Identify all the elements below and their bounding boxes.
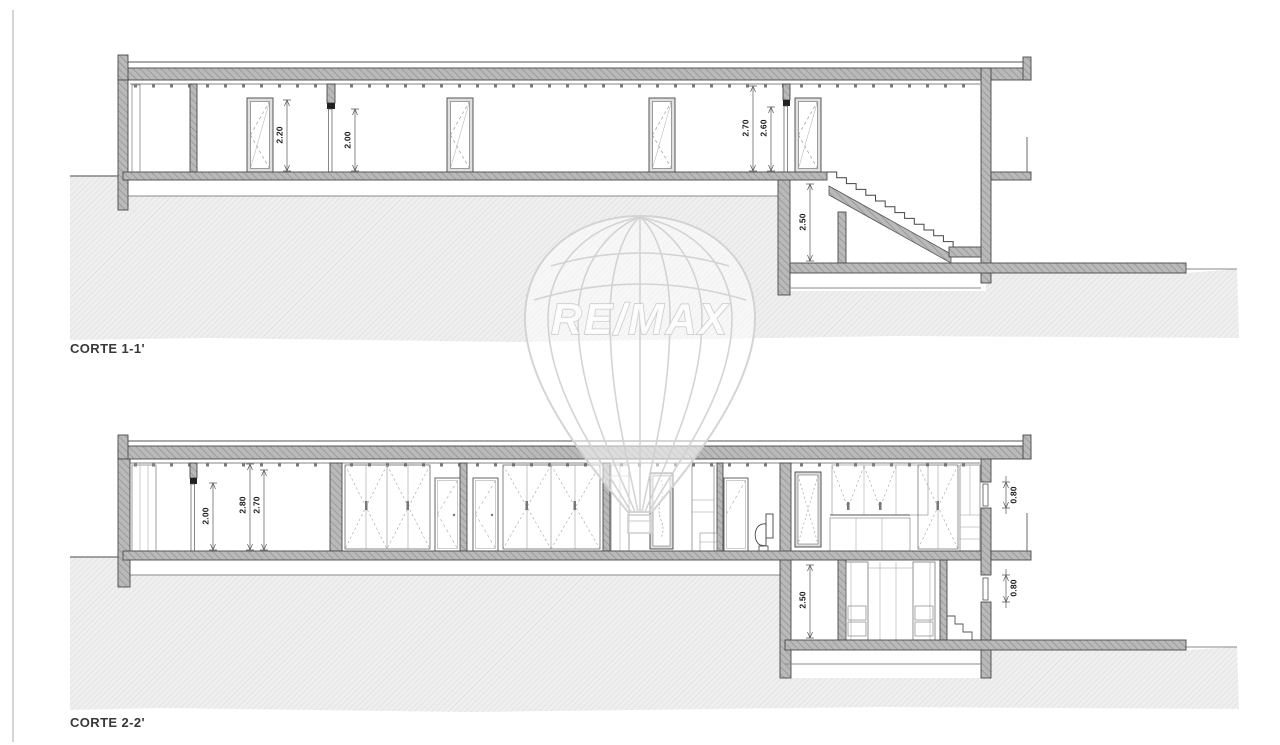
door-elevation xyxy=(435,478,460,551)
dimension-basement-height: 2.50 xyxy=(797,184,814,261)
ground-hatch xyxy=(70,557,1239,712)
door-head-stub xyxy=(783,84,790,100)
section-drawing-svg: 2.20 2.00 2.70 2.60 2.50 xyxy=(0,0,1280,745)
dim-label: 2.70 xyxy=(251,496,261,513)
dimension-basement-height: 2.50 xyxy=(797,565,814,638)
door-elevation xyxy=(724,478,748,551)
wall-left xyxy=(118,459,130,587)
basement-wall xyxy=(940,560,947,640)
door-head-tip xyxy=(190,478,197,484)
dim-label: 2.00 xyxy=(200,507,210,524)
dim-label: 2.00 xyxy=(342,131,352,148)
basement-wall-left xyxy=(778,172,790,295)
stair-landing xyxy=(949,247,981,257)
terrace-slab xyxy=(790,263,1186,273)
door-elevation xyxy=(649,98,675,172)
wardrobe-elevation xyxy=(345,465,430,549)
door-leaf-section xyxy=(784,106,788,172)
dimension-ceiling-height: 2.70 xyxy=(251,470,268,550)
dim-label: 2.20 xyxy=(274,126,284,143)
dimension-window-lower: 0.80 xyxy=(1002,569,1018,608)
bed-unit xyxy=(846,562,868,640)
door-head-tip xyxy=(783,100,790,106)
wall-right xyxy=(981,68,991,283)
corte-2-label: CORTE 2-2' xyxy=(70,715,145,730)
dim-label: 2.50 xyxy=(797,213,807,230)
understair-wall xyxy=(838,212,846,263)
roof-slab xyxy=(118,446,1031,459)
vanity-counter xyxy=(830,515,910,551)
tall-cabinet xyxy=(960,465,980,551)
dimension-window-upper: 0.80 xyxy=(1002,476,1018,514)
door-head-tip xyxy=(327,103,335,109)
door-elevation xyxy=(795,98,821,172)
window-frame-upper xyxy=(983,484,988,506)
parapet-right xyxy=(1023,57,1031,80)
basement-stairs xyxy=(947,616,980,640)
roof-slab xyxy=(118,68,1031,80)
blueprint-canvas: 2.20 2.00 2.70 2.60 2.50 xyxy=(0,0,1280,745)
parapet-right xyxy=(1023,435,1031,459)
porch-slab xyxy=(991,551,1031,560)
door-head-stub xyxy=(190,463,197,478)
dim-label: 2.50 xyxy=(797,591,807,608)
dimension-ceiling-height: 2.70 xyxy=(740,86,757,171)
floor-slab xyxy=(123,551,981,560)
door-elevation xyxy=(473,478,498,551)
watermark-brand-text: RE/MAX xyxy=(551,295,730,344)
basement-closet xyxy=(868,562,913,640)
dim-label: 0.80 xyxy=(1008,579,1018,596)
glazing-panel xyxy=(132,85,140,172)
wardrobe-elevation xyxy=(503,465,600,549)
partition-wall xyxy=(330,463,342,551)
corte-1-label: CORTE 1-1' xyxy=(70,341,145,356)
dim-label: 2.60 xyxy=(758,119,768,136)
dimension-opening-height: 2.00 xyxy=(200,483,217,550)
partition-wall xyxy=(190,84,197,172)
bed-unit xyxy=(913,562,935,640)
balloon-basket xyxy=(628,515,652,533)
door-leaf-section xyxy=(329,109,333,172)
glazing-panel xyxy=(132,465,156,551)
dim-label: 0.80 xyxy=(1008,486,1018,503)
door-elevation xyxy=(247,98,273,172)
shelf-partition xyxy=(692,465,717,551)
toilet xyxy=(755,514,773,551)
door-leaf-section xyxy=(191,484,195,551)
basement-floor-slab xyxy=(785,640,1186,650)
dim-label: 2.70 xyxy=(740,119,750,136)
dimension-door2-height: 2.60 xyxy=(758,107,775,171)
window-frame-lower xyxy=(983,578,988,600)
parapet-left xyxy=(118,55,128,80)
parapet-left xyxy=(118,435,128,459)
shower-door xyxy=(795,472,821,547)
wardrobe-elevation xyxy=(918,465,958,549)
door-elevation xyxy=(447,98,473,172)
basement-wall xyxy=(838,560,846,640)
dimension-opening-height: 2.00 xyxy=(342,109,359,171)
partition-wall xyxy=(460,463,467,551)
porch-slab xyxy=(991,172,1031,180)
dimension-door-height: 2.20 xyxy=(274,100,291,171)
wall-right xyxy=(981,508,991,575)
vanity-mirrors xyxy=(832,465,928,515)
wall-right xyxy=(981,459,991,482)
door-head-stub xyxy=(327,84,335,103)
wall-left xyxy=(118,80,128,210)
staircase xyxy=(827,172,981,263)
floor-slab xyxy=(123,172,827,180)
dim-label: 2.80 xyxy=(237,496,247,513)
partition-wall xyxy=(717,463,723,551)
